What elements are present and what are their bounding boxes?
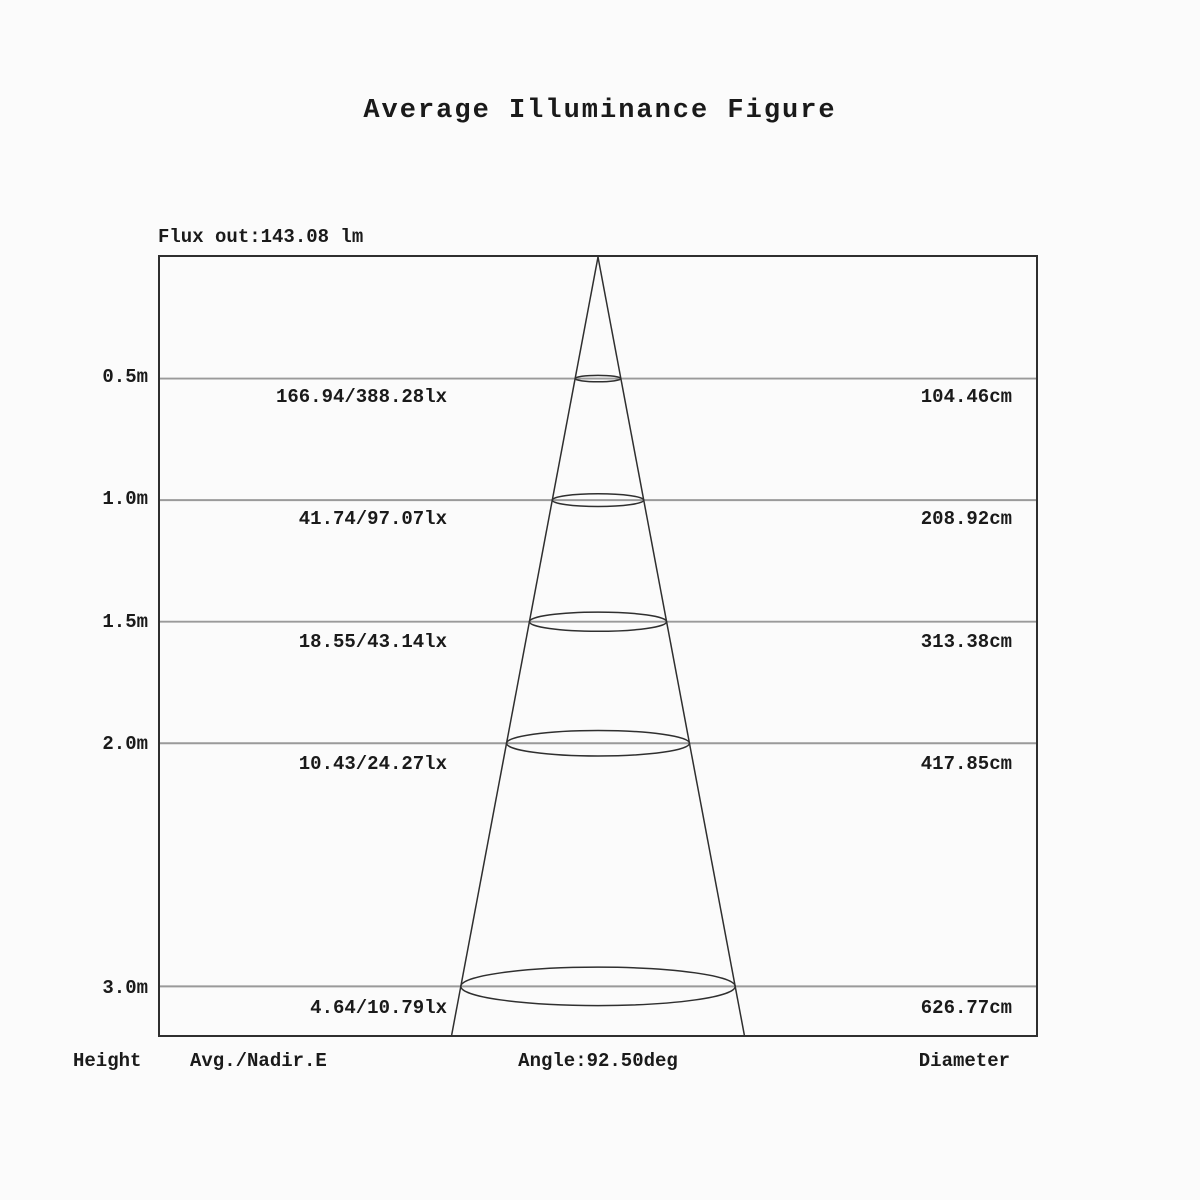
diameter-value: 417.85cm xyxy=(780,751,1012,777)
avg-nadir-value: 4.64/10.79lx xyxy=(160,995,447,1021)
avg-nadir-value: 166.94/388.28lx xyxy=(160,384,447,410)
height-tick-label: 1.5m xyxy=(38,609,148,635)
flux-out-label: Flux out:143.08 lm xyxy=(158,226,363,248)
diameter-value: 208.92cm xyxy=(780,506,1012,532)
footer-height-label: Height xyxy=(73,1048,141,1074)
page-title: Average Illuminance Figure xyxy=(0,96,1200,126)
footer-beam-angle-label: Angle:92.50deg xyxy=(518,1048,678,1074)
avg-nadir-value: 41.74/97.07lx xyxy=(160,506,447,532)
footer-avg-nadir-label: Avg./Nadir.E xyxy=(190,1048,327,1074)
avg-nadir-value: 10.43/24.27lx xyxy=(160,751,447,777)
height-tick-label: 2.0m xyxy=(38,731,148,757)
diameter-value: 104.46cm xyxy=(780,384,1012,410)
height-tick-label: 0.5m xyxy=(38,364,148,390)
avg-nadir-value: 18.55/43.14lx xyxy=(160,629,447,655)
diameter-value: 626.77cm xyxy=(780,995,1012,1021)
diameter-value: 313.38cm xyxy=(780,629,1012,655)
height-tick-label: 3.0m xyxy=(38,975,148,1001)
height-tick-label: 1.0m xyxy=(38,486,148,512)
footer-diameter-label: Diameter xyxy=(919,1048,1010,1074)
